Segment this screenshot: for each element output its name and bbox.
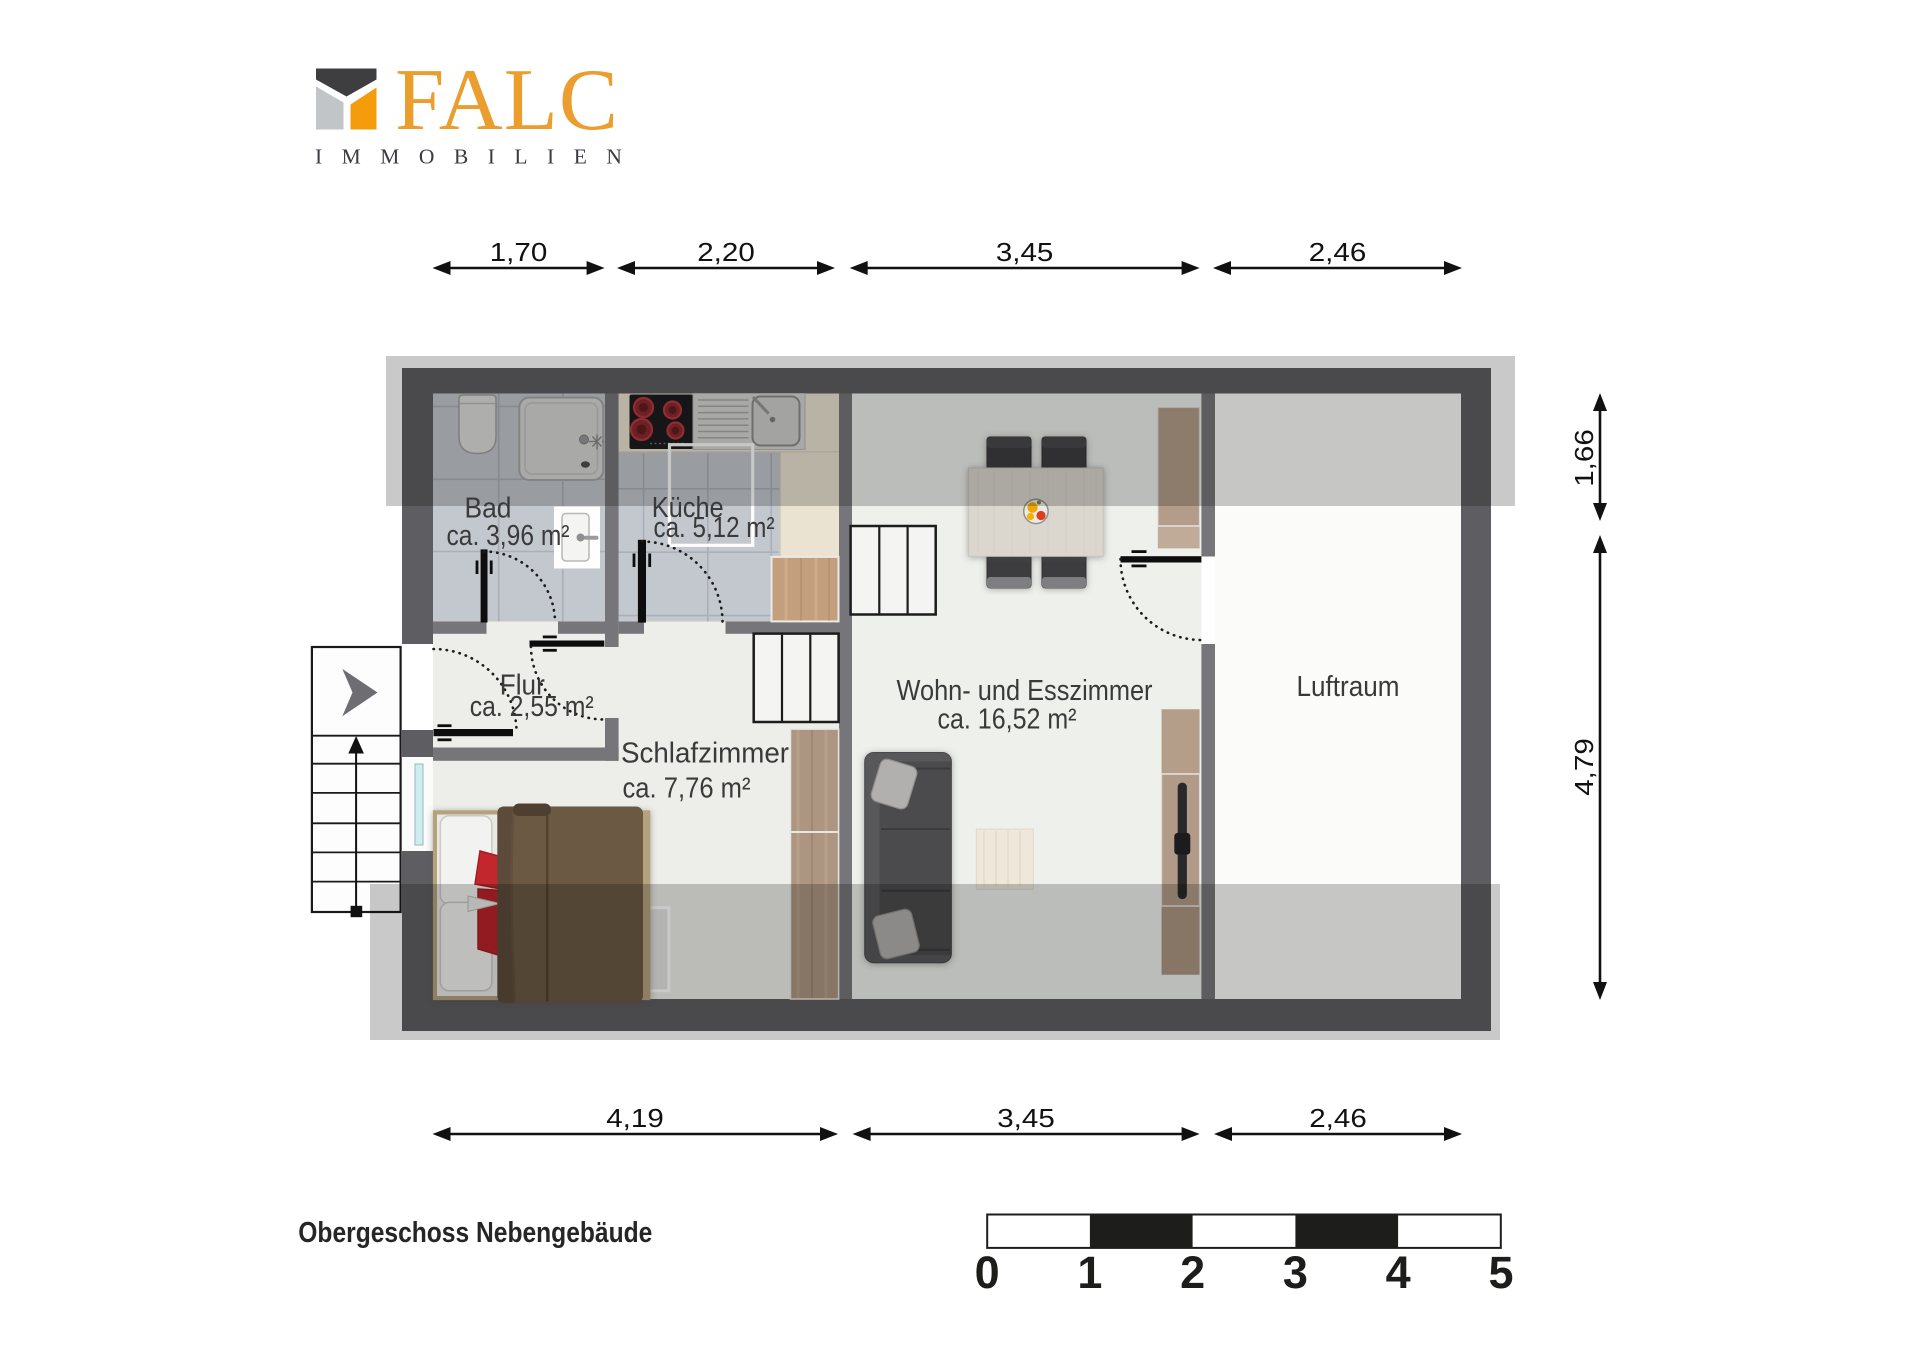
svg-text:2: 2 bbox=[1180, 1247, 1205, 1298]
svg-text:1,70: 1,70 bbox=[490, 237, 548, 267]
svg-text:4,19: 4,19 bbox=[606, 1103, 664, 1133]
svg-text:4: 4 bbox=[1386, 1247, 1411, 1298]
svg-text:2,46: 2,46 bbox=[1309, 237, 1367, 267]
svg-text:Obergeschoss Nebengebäude: Obergeschoss Nebengebäude bbox=[298, 1217, 652, 1249]
svg-text:Schlafzimmer: Schlafzimmer bbox=[621, 738, 789, 770]
svg-text:IMMOBILIEN: IMMOBILIEN bbox=[315, 145, 641, 169]
svg-text:3,45: 3,45 bbox=[997, 1103, 1055, 1133]
svg-text:4,79: 4,79 bbox=[1569, 738, 1599, 796]
svg-text:5: 5 bbox=[1488, 1247, 1513, 1298]
svg-text:1,66: 1,66 bbox=[1569, 429, 1599, 487]
svg-text:0: 0 bbox=[975, 1247, 1000, 1298]
svg-text:Luftraum: Luftraum bbox=[1297, 671, 1400, 703]
svg-text:ca. 3,96 m²: ca. 3,96 m² bbox=[447, 520, 570, 552]
svg-text:3,45: 3,45 bbox=[996, 237, 1054, 267]
svg-text:FALC: FALC bbox=[395, 52, 619, 149]
svg-text:ca. 16,52 m²: ca. 16,52 m² bbox=[938, 704, 1077, 736]
svg-text:3: 3 bbox=[1283, 1247, 1308, 1298]
svg-text:ca. 5,12 m²: ca. 5,12 m² bbox=[654, 512, 775, 544]
svg-text:Wohn- und Esszimmer: Wohn- und Esszimmer bbox=[897, 675, 1153, 707]
svg-text:2,46: 2,46 bbox=[1309, 1103, 1367, 1133]
svg-text:ca. 2,55 m²: ca. 2,55 m² bbox=[470, 691, 594, 723]
svg-text:2,20: 2,20 bbox=[697, 237, 755, 267]
svg-text:ca. 7,76 m²: ca. 7,76 m² bbox=[623, 773, 751, 805]
svg-text:1: 1 bbox=[1077, 1247, 1102, 1298]
